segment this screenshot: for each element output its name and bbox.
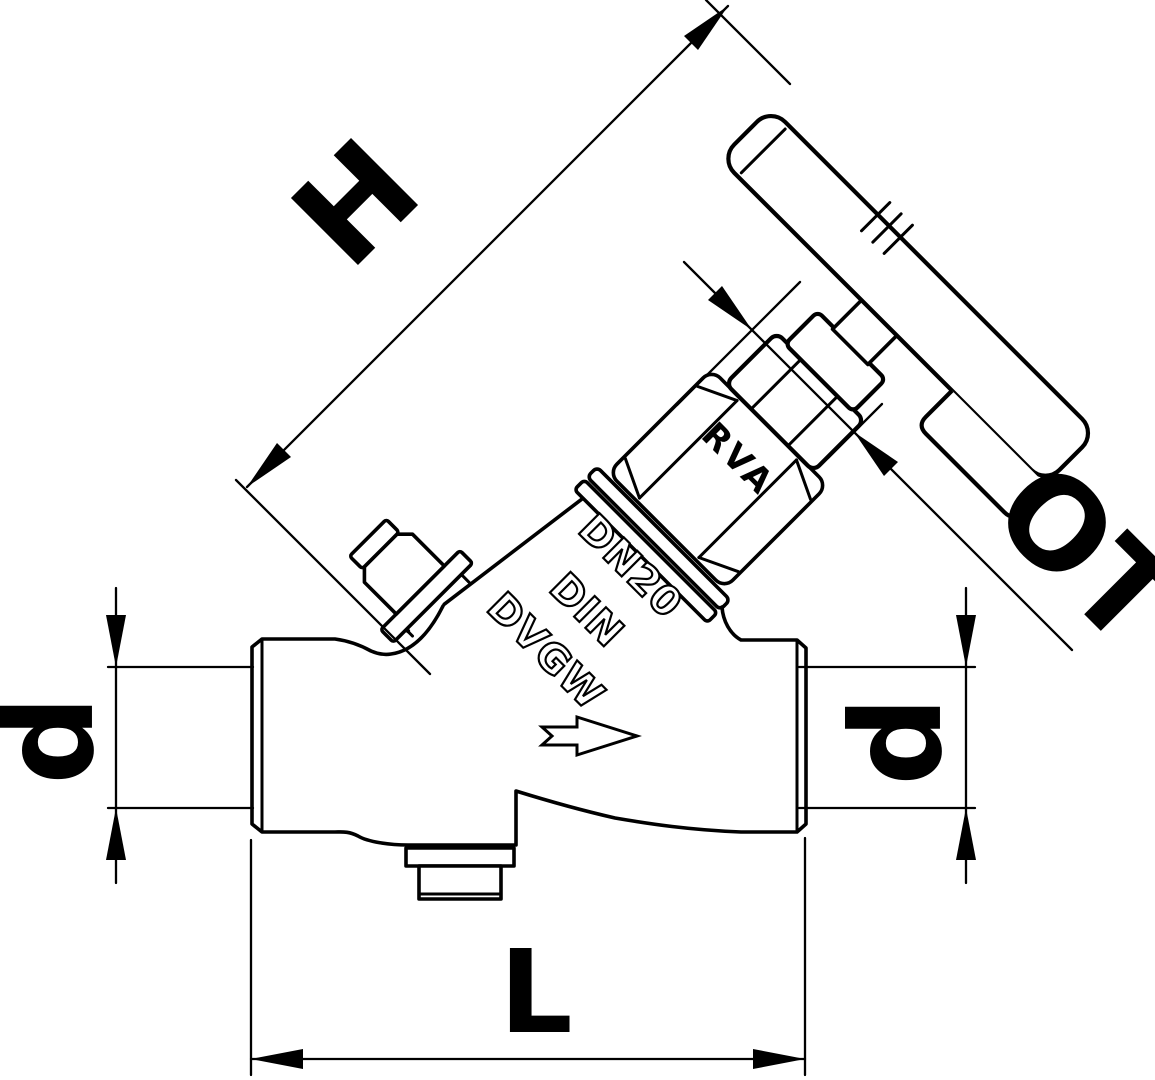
dimension-diameter-right: d <box>799 588 976 883</box>
bottom-plug-boss <box>406 848 514 899</box>
valve-technical-drawing: RVA DN20 DIN DVGW H OT <box>0 0 1155 1080</box>
dimension-length: L <box>251 838 805 1075</box>
d-left-label: d <box>0 695 122 784</box>
d-left-arrowhead-bottom <box>106 808 126 860</box>
d-right-arrowhead-top <box>956 615 976 667</box>
drawing-canvas: RVA DN20 DIN DVGW H OT <box>0 0 1155 1080</box>
flow-direction-arrow-icon <box>542 717 637 755</box>
d-left-arrowhead-top <box>106 615 126 667</box>
d-right-arrowhead-bottom <box>956 808 976 860</box>
ink-dot <box>406 629 410 633</box>
d-right-label: d <box>825 696 970 785</box>
h-dimension-line <box>247 6 728 487</box>
bottom-boss-flange <box>406 848 514 866</box>
l-arrowhead-left <box>251 1049 303 1069</box>
dimension-diameter-left: d <box>0 588 253 883</box>
l-label: L <box>499 926 572 1060</box>
d-left-extension-lines <box>108 667 253 808</box>
l-arrowhead-right <box>753 1049 805 1069</box>
h-label: H <box>264 111 448 295</box>
side-plug-boss <box>328 498 480 650</box>
